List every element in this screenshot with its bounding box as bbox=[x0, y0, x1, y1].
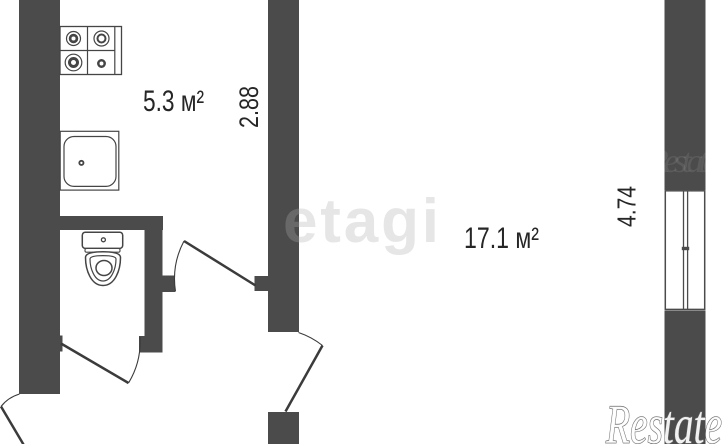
svg-text:2.88: 2.88 bbox=[234, 86, 264, 128]
svg-text:Restate: Restate bbox=[605, 394, 722, 444]
svg-text:etagi: etagi bbox=[283, 187, 439, 256]
svg-text:5.3 м²: 5.3 м² bbox=[143, 85, 204, 118]
svg-text:17.1 м²: 17.1 м² bbox=[464, 222, 539, 255]
svg-text:4.74: 4.74 bbox=[612, 186, 642, 227]
svg-text:Restate: Restate bbox=[647, 143, 718, 180]
